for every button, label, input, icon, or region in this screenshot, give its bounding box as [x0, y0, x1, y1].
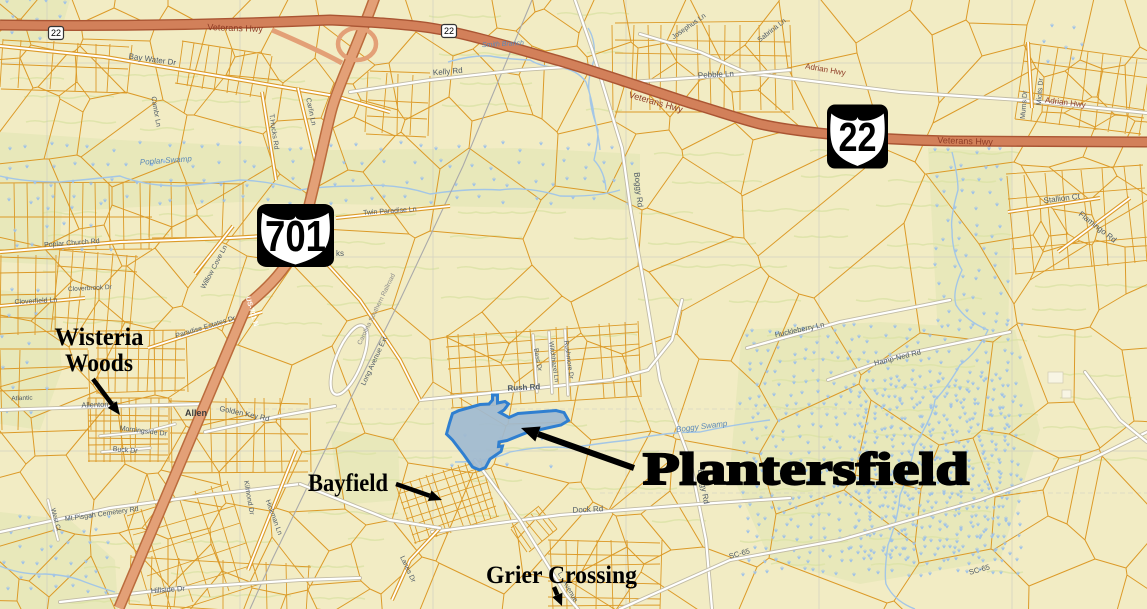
svg-text:Veterans Hwy: Veterans Hwy: [207, 22, 263, 34]
svg-text:Plantersfield: Plantersfield: [643, 443, 970, 494]
svg-text:ks: ks: [336, 249, 344, 258]
svg-text:Woods: Woods: [65, 350, 133, 377]
svg-text:Grier Crossing: Grier Crossing: [486, 562, 637, 589]
svg-text:Atlantic: Atlantic: [11, 395, 33, 403]
svg-text:Wisteria: Wisteria: [55, 324, 144, 351]
svg-text:Dock Rd: Dock Rd: [572, 504, 603, 515]
svg-text:701: 701: [265, 212, 326, 261]
svg-text:Rush Rd: Rush Rd: [507, 382, 540, 393]
svg-text:Bayfield: Bayfield: [308, 470, 388, 497]
svg-text:22: 22: [839, 114, 877, 160]
svg-text:22: 22: [444, 26, 454, 36]
svg-text:Allen: Allen: [185, 408, 207, 418]
svg-text:22: 22: [51, 28, 61, 38]
svg-text:Veterans Hwy: Veterans Hwy: [937, 135, 993, 147]
svg-text:Pebble Ln: Pebble Ln: [698, 69, 734, 80]
